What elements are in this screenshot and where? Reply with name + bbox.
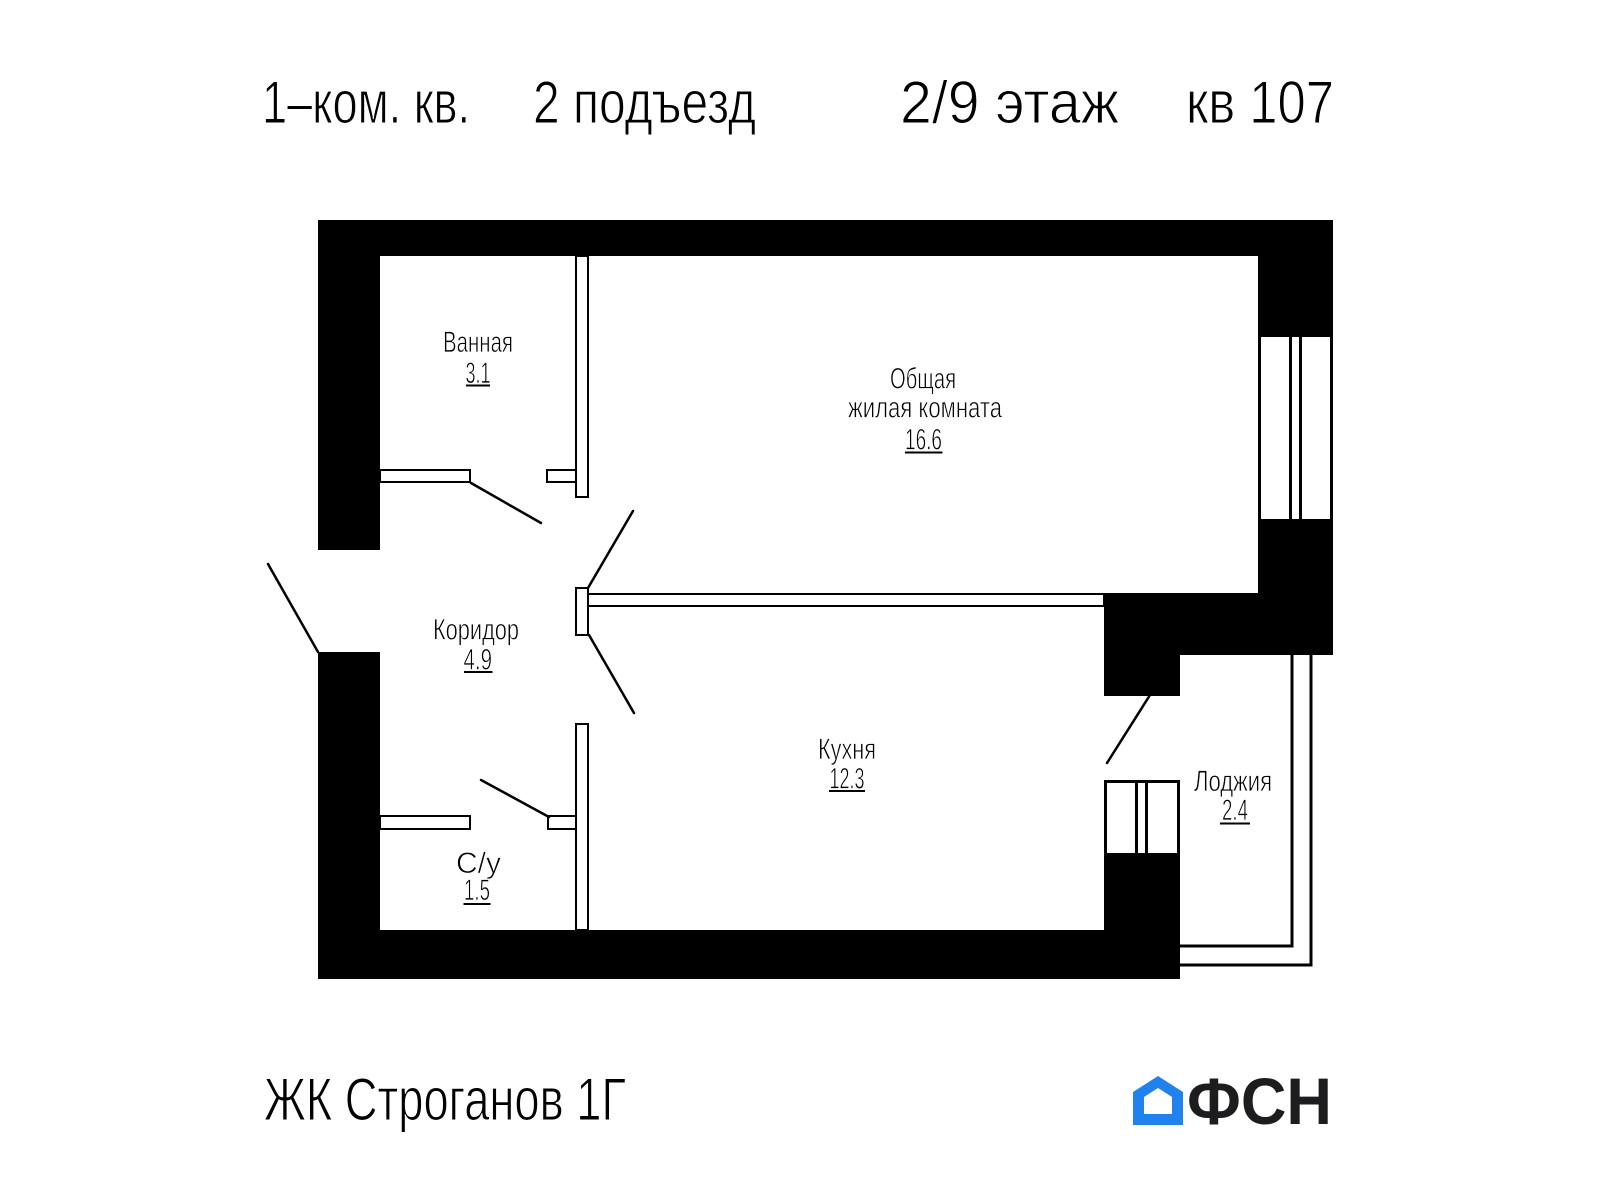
svg-text:2.4: 2.4 (1222, 794, 1248, 827)
svg-text:ЖК Строганов 1Г: ЖК Строганов 1Г (264, 1066, 626, 1133)
svg-text:жилая комната: жилая комната (848, 392, 1002, 425)
svg-text:Коридор: Коридор (433, 614, 519, 647)
svg-text:2 подъезд: 2 подъезд (533, 69, 756, 136)
svg-text:Ванная: Ванная (443, 326, 513, 359)
svg-text:Кухня: Кухня (818, 733, 876, 766)
svg-text:ФСН: ФСН (1187, 1064, 1332, 1138)
svg-text:1–ком. кв.: 1–ком. кв. (262, 69, 470, 136)
svg-text:кв 107: кв 107 (1186, 69, 1334, 136)
svg-text:2/9 этаж: 2/9 этаж (900, 69, 1119, 136)
svg-text:1.5: 1.5 (464, 874, 490, 907)
